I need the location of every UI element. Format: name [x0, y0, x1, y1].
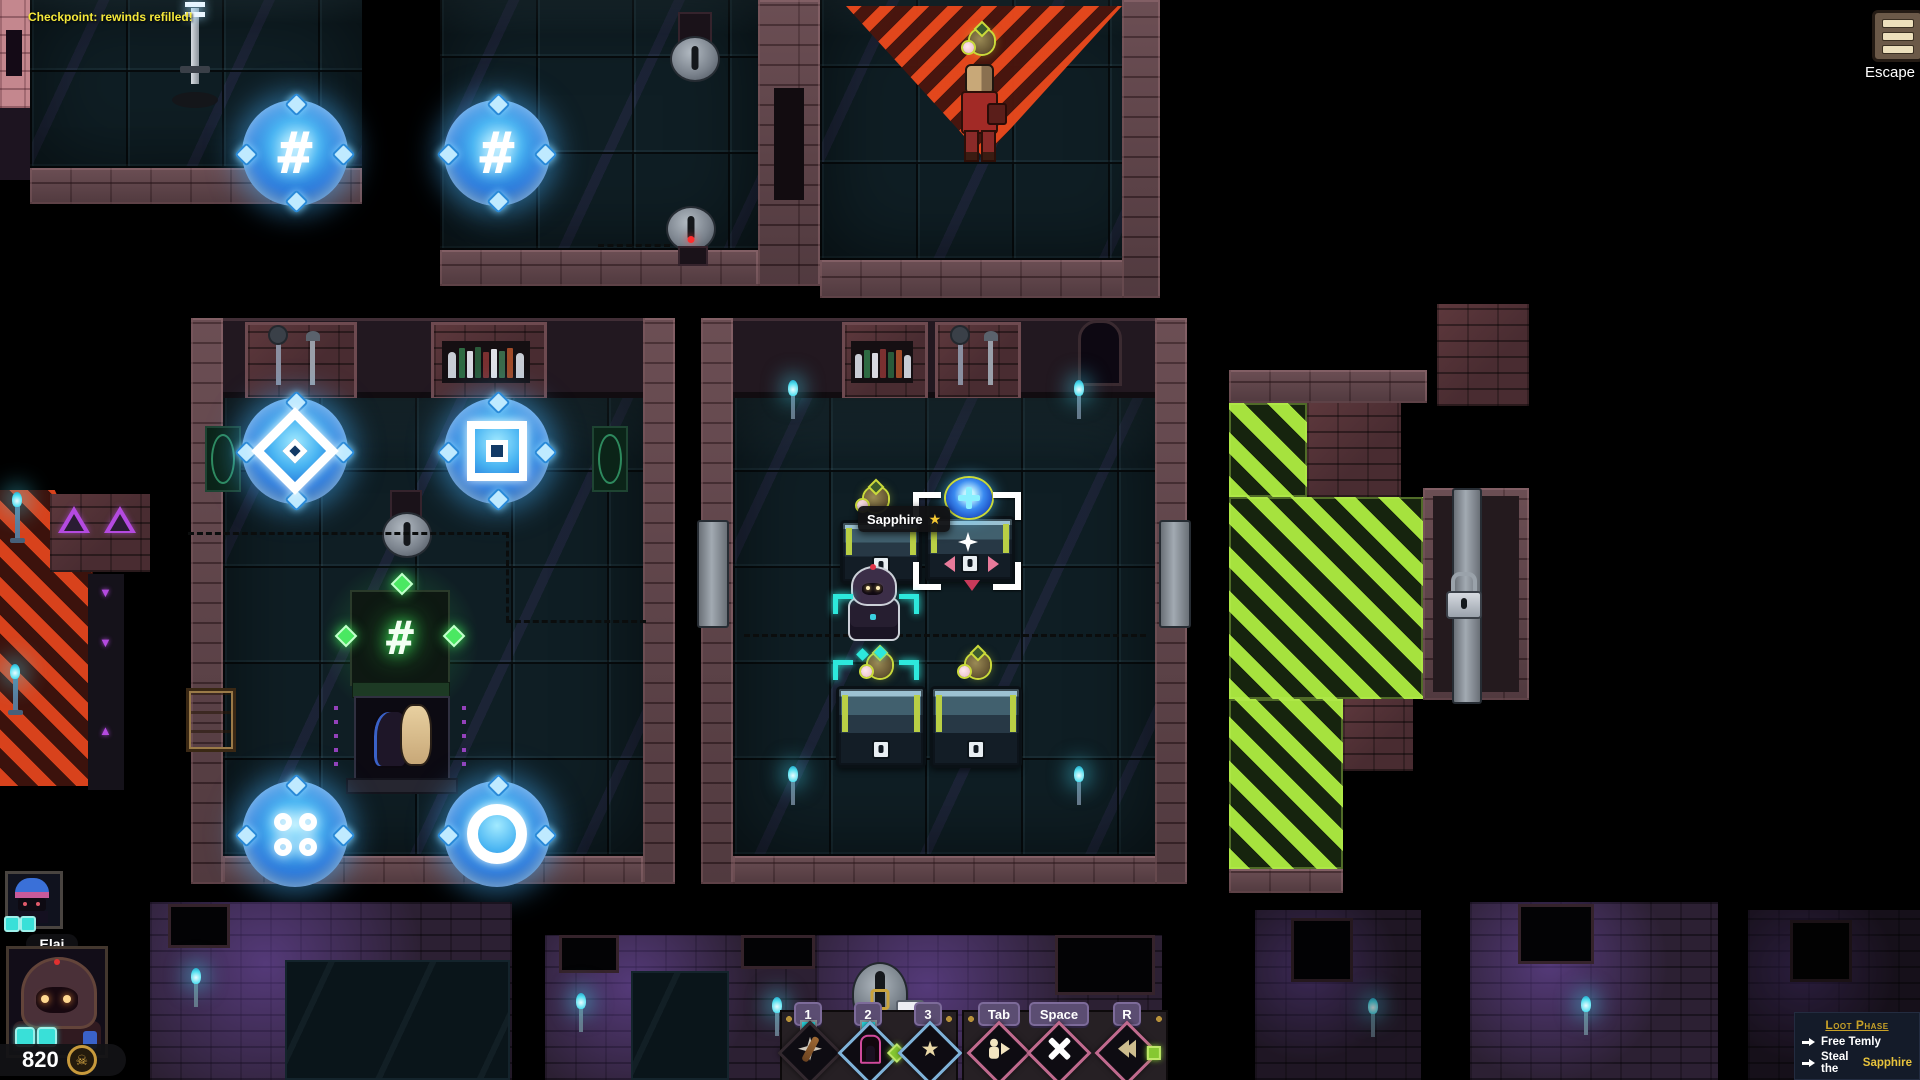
containment-base [346, 778, 458, 794]
room-guard-wall-right [1122, 0, 1160, 298]
book-icon [872, 353, 878, 378]
portal-stud [284, 189, 308, 213]
security-camera[interactable] [664, 12, 724, 82]
bag-hand [959, 666, 970, 677]
bookshelf [431, 322, 547, 400]
panel-ellipse-icon [598, 434, 622, 484]
wall-torch [1073, 766, 1085, 806]
chest-trim [842, 695, 848, 731]
camera-mount [678, 246, 708, 266]
window [1790, 920, 1852, 982]
book-icon [888, 352, 894, 378]
portal-glyph-square-icon [467, 421, 527, 481]
window [1518, 904, 1594, 964]
chest-trim [936, 695, 942, 731]
gem-facet [966, 487, 972, 509]
target-bracket-icon [913, 562, 941, 590]
player-character[interactable] [846, 566, 898, 640]
bookend-icon [855, 354, 862, 378]
action-rewind[interactable] [1094, 1020, 1159, 1080]
tripwire [506, 532, 509, 622]
move-marker-icon [899, 660, 919, 680]
bookshelf-2 [842, 322, 928, 400]
window [1291, 918, 1353, 982]
sapphire-gem-icon[interactable] [946, 478, 992, 518]
ability-slot-weapon[interactable] [777, 1020, 842, 1080]
rune-strip [462, 702, 466, 766]
cloak-door-icon [860, 1034, 881, 1063]
shelf [851, 341, 913, 383]
party-member-portrait[interactable] [5, 871, 63, 929]
leftroom-wall-left [191, 318, 223, 884]
hotbar-actions: Tab Space R [962, 1010, 1168, 1080]
exit-zone-green[interactable] [1229, 497, 1423, 699]
portal-glyph-diamond-icon [251, 407, 339, 495]
wall-torch [190, 968, 202, 1008]
book-icon [475, 347, 481, 378]
action-swap-character[interactable] [966, 1020, 1031, 1080]
window-arch [1078, 320, 1122, 386]
menu-bar-icon [1882, 45, 1914, 54]
door-right[interactable] [1159, 520, 1191, 628]
wall-pink [0, 0, 30, 108]
guard[interactable] [956, 64, 1000, 164]
chest[interactable] [930, 686, 1022, 768]
portal-hash-1[interactable]: # [242, 100, 348, 206]
green-display-panel [205, 426, 241, 492]
bookend-icon [448, 352, 456, 378]
mana-gem-icon [4, 916, 20, 932]
containment-cell[interactable]: # [350, 584, 450, 784]
guard-weapon [987, 103, 1007, 125]
mace-head-icon [952, 327, 968, 343]
chest[interactable] [836, 686, 926, 768]
candle [8, 492, 28, 548]
steal-arrow-left-icon [944, 556, 955, 572]
candle [6, 664, 26, 720]
torch-flame-icon [191, 968, 201, 984]
wooden-crate[interactable] [186, 688, 236, 752]
portal-ring[interactable] [444, 781, 550, 887]
axe-handle [310, 337, 315, 385]
wall-torch [1367, 998, 1379, 1038]
containment-glyph-hash: # [386, 615, 414, 661]
candle-stem [13, 678, 18, 712]
window [168, 904, 230, 948]
brick-pillar [1437, 304, 1529, 406]
wall-torch [575, 993, 587, 1033]
chest-lock-icon [961, 554, 979, 573]
portal-glyph-hash: # [480, 124, 515, 182]
bottom-wall-e [1470, 902, 1718, 1080]
security-camera-alarm[interactable] [660, 206, 720, 276]
bookend-icon [904, 355, 911, 378]
objective-text: Free Temly [1821, 1036, 1881, 1048]
room-guard-wall [820, 260, 1158, 298]
loot-bag-icon[interactable] [958, 646, 994, 682]
ability-charge-icon [1147, 1046, 1161, 1060]
star-icon: ★ [921, 1038, 940, 1059]
guard-leg [964, 130, 979, 162]
rune-down-icon: ▼ [99, 636, 112, 649]
rune-up-icon: ▲ [99, 724, 112, 737]
hotbar-abilities: 1 2 3 ★ [780, 1010, 958, 1080]
book-icon [459, 348, 465, 378]
bag-hand [861, 666, 872, 677]
chevron-right-icon [1001, 1043, 1010, 1055]
wall-divider [758, 0, 820, 286]
torch-flame-icon [1074, 380, 1084, 396]
loot-bag-icon[interactable] [962, 22, 998, 58]
objective-text: Steal the [1821, 1051, 1857, 1075]
mana-gem-icon [20, 916, 36, 932]
portal-glyph-hash: # [278, 124, 313, 182]
ability-slot-cloak[interactable] [837, 1020, 902, 1080]
temly[interactable] [400, 704, 432, 766]
book-icon [467, 351, 473, 378]
person-icon [989, 1039, 998, 1059]
player-buckle [870, 614, 876, 620]
tooltip-star-icon: ★ [929, 511, 942, 528]
padlock-icon [1446, 572, 1482, 614]
portal-glyph-dots-icon [274, 813, 317, 856]
player-eye [876, 586, 880, 590]
exit-zone-green[interactable] [1229, 403, 1307, 497]
player-face [862, 583, 883, 595]
leader-gem-icon [54, 959, 60, 965]
window [741, 935, 815, 969]
greenzone-wall-bottom [1229, 869, 1343, 893]
objectives-panel: Loot Phase Free Temly Steal the Sapphire [1794, 1012, 1920, 1080]
mace-head-icon [270, 327, 286, 343]
door-left[interactable] [697, 520, 729, 628]
menu-bar-icon [1882, 19, 1914, 28]
portal-hash-2[interactable]: # [444, 100, 550, 206]
padlock-body [1446, 591, 1482, 619]
tripwire [188, 532, 508, 535]
panel-ellipse-icon [211, 434, 235, 484]
book-icon [507, 348, 513, 378]
centerroom-wall-bottom [733, 856, 1157, 884]
candle-dish [8, 710, 23, 715]
torch-flame-icon [1074, 766, 1084, 782]
torch-flame-icon [576, 993, 586, 1009]
wall-torch [1073, 380, 1085, 420]
brick-block [1307, 403, 1401, 497]
wall-torch [1580, 996, 1592, 1036]
member-eye [36, 902, 40, 906]
padlock-shackle [1451, 572, 1477, 591]
torch-flame-icon [1368, 998, 1378, 1014]
wall-dark [0, 108, 30, 180]
candle-stem [15, 506, 20, 540]
shelf [442, 341, 530, 383]
menu-bar-icon [1882, 32, 1914, 41]
rune-down-icon: ▼ [99, 586, 112, 599]
book-icon [880, 349, 886, 378]
candle-dish [10, 538, 25, 543]
sword-crossguard [180, 66, 210, 73]
player-gem-icon [870, 564, 876, 570]
ability-slot-star[interactable]: ★ [897, 1020, 962, 1080]
member-hat [15, 878, 49, 893]
objective-steal-sapphire: Steal the Sapphire [1802, 1051, 1912, 1075]
skull-coin-icon: ☠ [67, 1045, 97, 1075]
move-marker-icon [899, 594, 919, 614]
book-icon [483, 352, 489, 378]
window [559, 935, 619, 973]
leader-portrait[interactable] [6, 946, 108, 1058]
book-icon [491, 349, 497, 378]
bottom-wall-b [545, 935, 817, 1080]
book-icon [499, 351, 505, 378]
containment-sigil-box: # [350, 590, 450, 686]
chest-trim [914, 695, 920, 731]
player-eye [866, 586, 870, 590]
camera-dome-icon [670, 36, 720, 82]
escape-menu: Escape [1860, 10, 1920, 82]
camera-slit [692, 46, 699, 70]
phase-title: Loot Phase [1802, 1018, 1912, 1032]
green-display-panel [592, 426, 628, 492]
dark-panel [285, 960, 510, 1080]
coin-counter: 820 ☠ [0, 1044, 126, 1076]
weapon-rack-2 [935, 322, 1021, 400]
brick-block [1343, 699, 1413, 771]
axe-handle [988, 337, 993, 385]
checkpoint-message: Checkpoint: rewinds refilled! [28, 10, 193, 24]
member-eye [23, 902, 27, 906]
axe-head-icon [306, 331, 320, 341]
rune-shaft: ▼ ▼ ▲ [88, 574, 124, 790]
dark-panel [631, 971, 729, 1080]
wall-window [6, 30, 22, 76]
exit-zone-green[interactable] [1229, 699, 1343, 869]
greenzone-wall-top [1229, 370, 1427, 403]
bookend-icon [516, 353, 524, 378]
wall-torch [787, 766, 799, 806]
book-icon [864, 350, 870, 378]
leader-eye [41, 995, 49, 1003]
target-bracket-icon [993, 492, 1021, 520]
chest-trim [1010, 695, 1016, 731]
book-icon [896, 350, 902, 378]
bag-hand [963, 42, 974, 53]
purple-triangle-icon [104, 506, 136, 533]
wall-slot [774, 88, 804, 200]
chest-trim [1003, 524, 1009, 553]
candle-flame-icon [12, 492, 22, 507]
leader-eye [63, 995, 71, 1003]
steal-arrow-right-icon [988, 556, 999, 572]
chest-trim [846, 528, 852, 556]
torch-flame-icon [788, 380, 798, 396]
temly-cell [354, 696, 450, 782]
wall-torch [787, 380, 799, 420]
objective-arrow-icon [1802, 1038, 1815, 1047]
security-camera-mid[interactable] [374, 490, 434, 566]
purple-triangle-icon [58, 506, 90, 533]
game-viewport: # # [0, 0, 1920, 1080]
torch-flame-icon [788, 766, 798, 782]
chest-lock-icon [967, 740, 985, 759]
guard-leg [981, 130, 996, 162]
menu-button[interactable] [1872, 10, 1920, 62]
objective-target: Sapphire [1863, 1057, 1912, 1069]
rune-strip [334, 702, 338, 766]
sword-base [172, 92, 218, 108]
candle-flame-icon [10, 664, 20, 679]
objective-free-temly: Free Temly [1802, 1036, 1912, 1048]
item-tooltip: Sapphire ★ [858, 506, 950, 532]
move-marker-icon [833, 594, 853, 614]
escape-label: Escape [1860, 64, 1920, 81]
camera-dome-icon [382, 512, 432, 558]
steal-arrow-down-icon [964, 580, 980, 591]
bottom-wall-d [1255, 910, 1421, 1080]
objective-arrow-icon [1802, 1059, 1815, 1068]
tooltip-item-name: Sapphire [867, 512, 923, 527]
coin-amount: 820 [22, 1047, 59, 1073]
bottom-wall-a [150, 902, 512, 1080]
sword-glow-icon [185, 2, 205, 7]
portal-square[interactable] [444, 398, 550, 504]
axe-head-icon [984, 331, 998, 341]
window [1055, 935, 1155, 995]
move-marker-icon [833, 660, 853, 680]
weapon-rack [245, 322, 357, 400]
torch-flame-icon [1581, 996, 1591, 1012]
leftroom-wall-right [643, 318, 675, 884]
action-cancel[interactable] [1026, 1020, 1091, 1080]
chest-lock-icon [872, 740, 890, 759]
portal-glyph-ring-icon [467, 804, 527, 864]
portal-dots[interactable] [242, 781, 348, 887]
tripwire [598, 244, 670, 247]
rewind-icon [1125, 1040, 1136, 1058]
camera-red-light-icon [688, 236, 695, 243]
tripwire [506, 620, 646, 623]
tripwire-center [744, 634, 1146, 637]
portal-diamond[interactable] [242, 398, 348, 504]
